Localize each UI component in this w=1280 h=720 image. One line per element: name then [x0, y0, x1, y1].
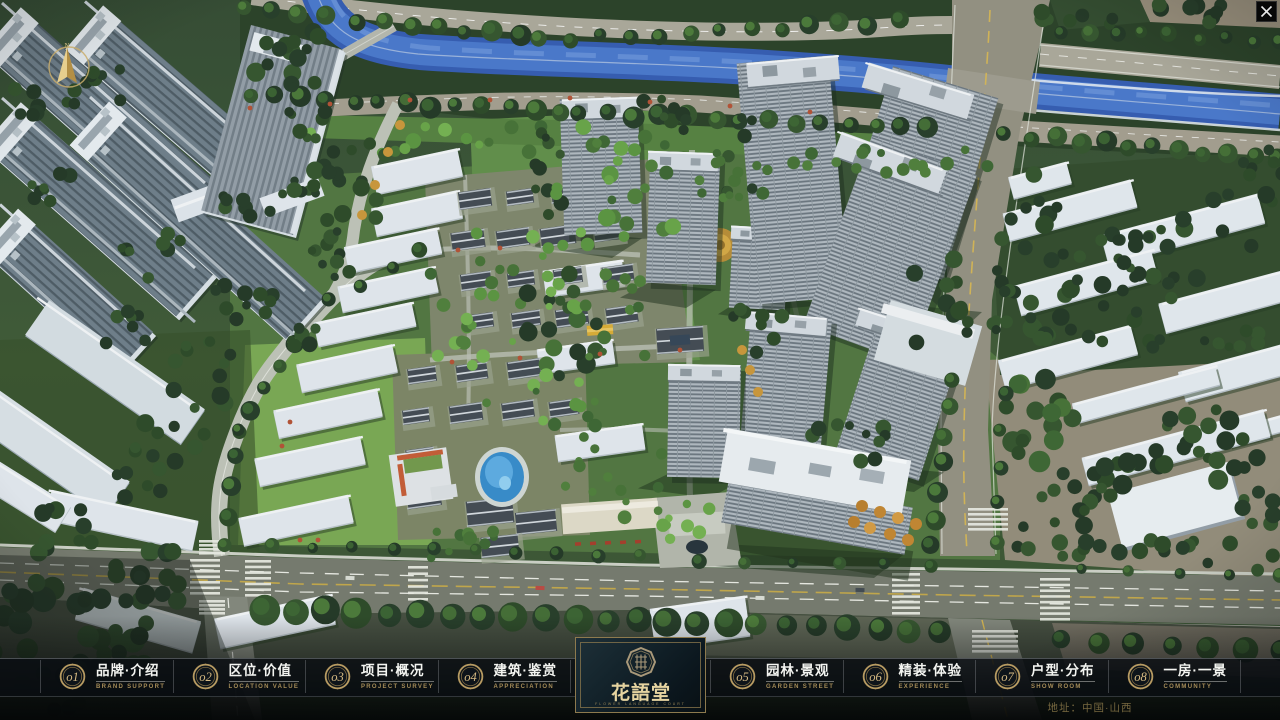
svg-text:o5: o5	[736, 670, 749, 684]
svg-text:o2: o2	[199, 670, 212, 684]
svg-text:o1: o1	[66, 670, 79, 684]
svg-text:o7: o7	[1001, 670, 1014, 684]
svg-text:o8: o8	[1134, 670, 1147, 684]
svg-text:o3: o3	[331, 670, 344, 684]
svg-text:o6: o6	[869, 670, 882, 684]
svg-text:o4: o4	[464, 670, 477, 684]
